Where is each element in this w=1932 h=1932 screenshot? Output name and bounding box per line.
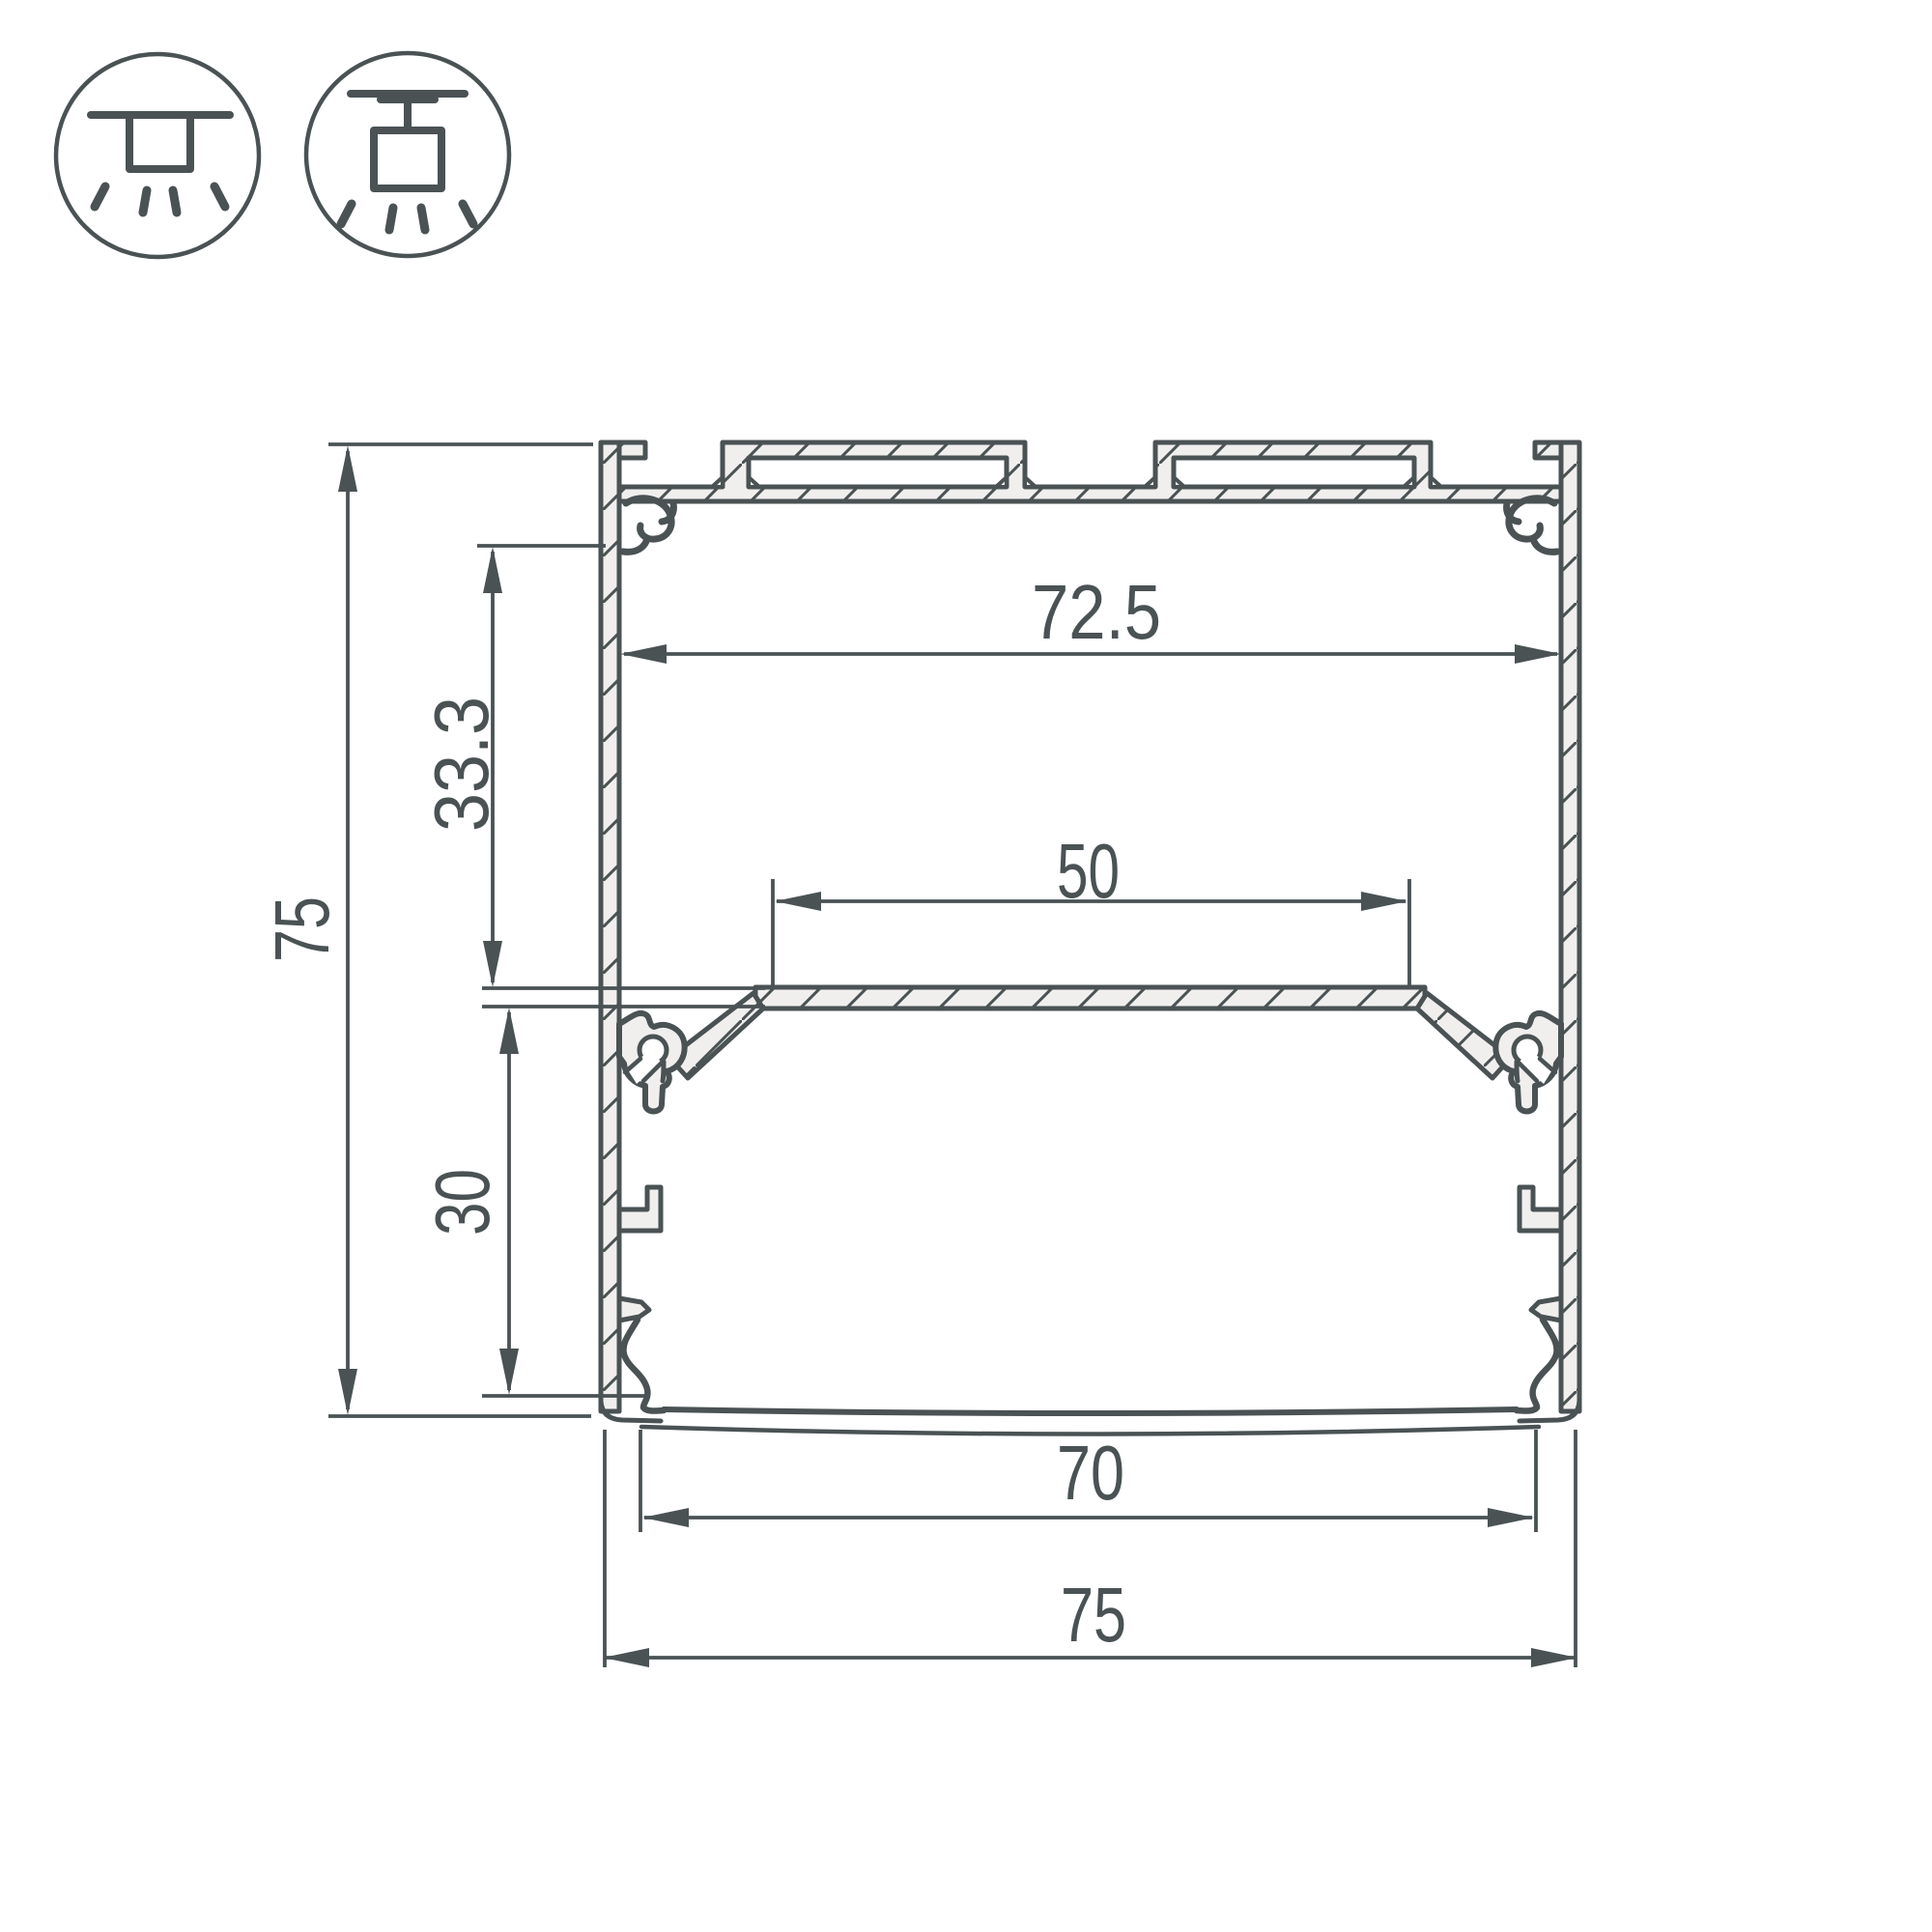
- svg-text:75: 75: [259, 896, 345, 962]
- svg-text:70: 70: [1057, 1430, 1124, 1516]
- svg-text:72.5: 72.5: [1032, 569, 1161, 655]
- svg-text:50: 50: [1057, 828, 1120, 914]
- svg-text:75: 75: [1061, 1572, 1126, 1658]
- svg-text:30: 30: [419, 1169, 505, 1236]
- svg-text:33.3: 33.3: [418, 696, 504, 832]
